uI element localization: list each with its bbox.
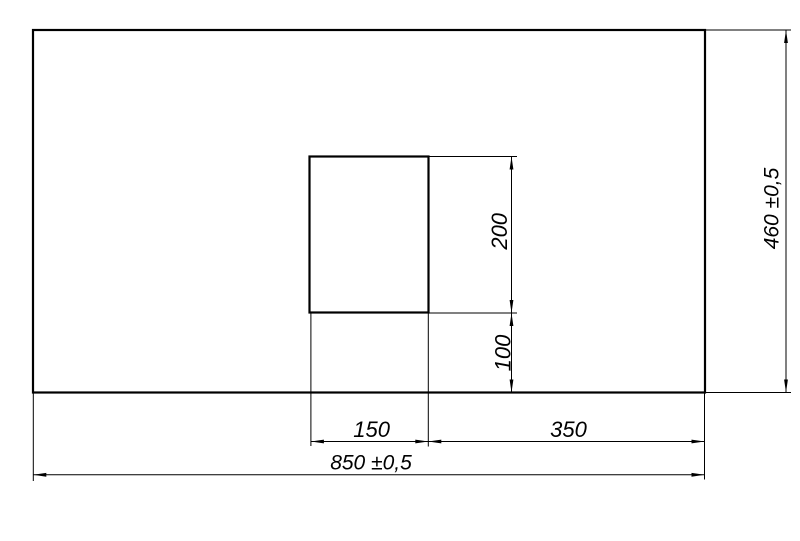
svg-text:200: 200 [487, 212, 512, 250]
svg-text:100: 100 [491, 334, 516, 371]
svg-text:460 ±0,5: 460 ±0,5 [761, 167, 784, 249]
svg-text:850 ±0,5: 850 ±0,5 [330, 451, 412, 474]
svg-text:150: 150 [353, 417, 390, 442]
svg-text:350: 350 [550, 417, 587, 442]
